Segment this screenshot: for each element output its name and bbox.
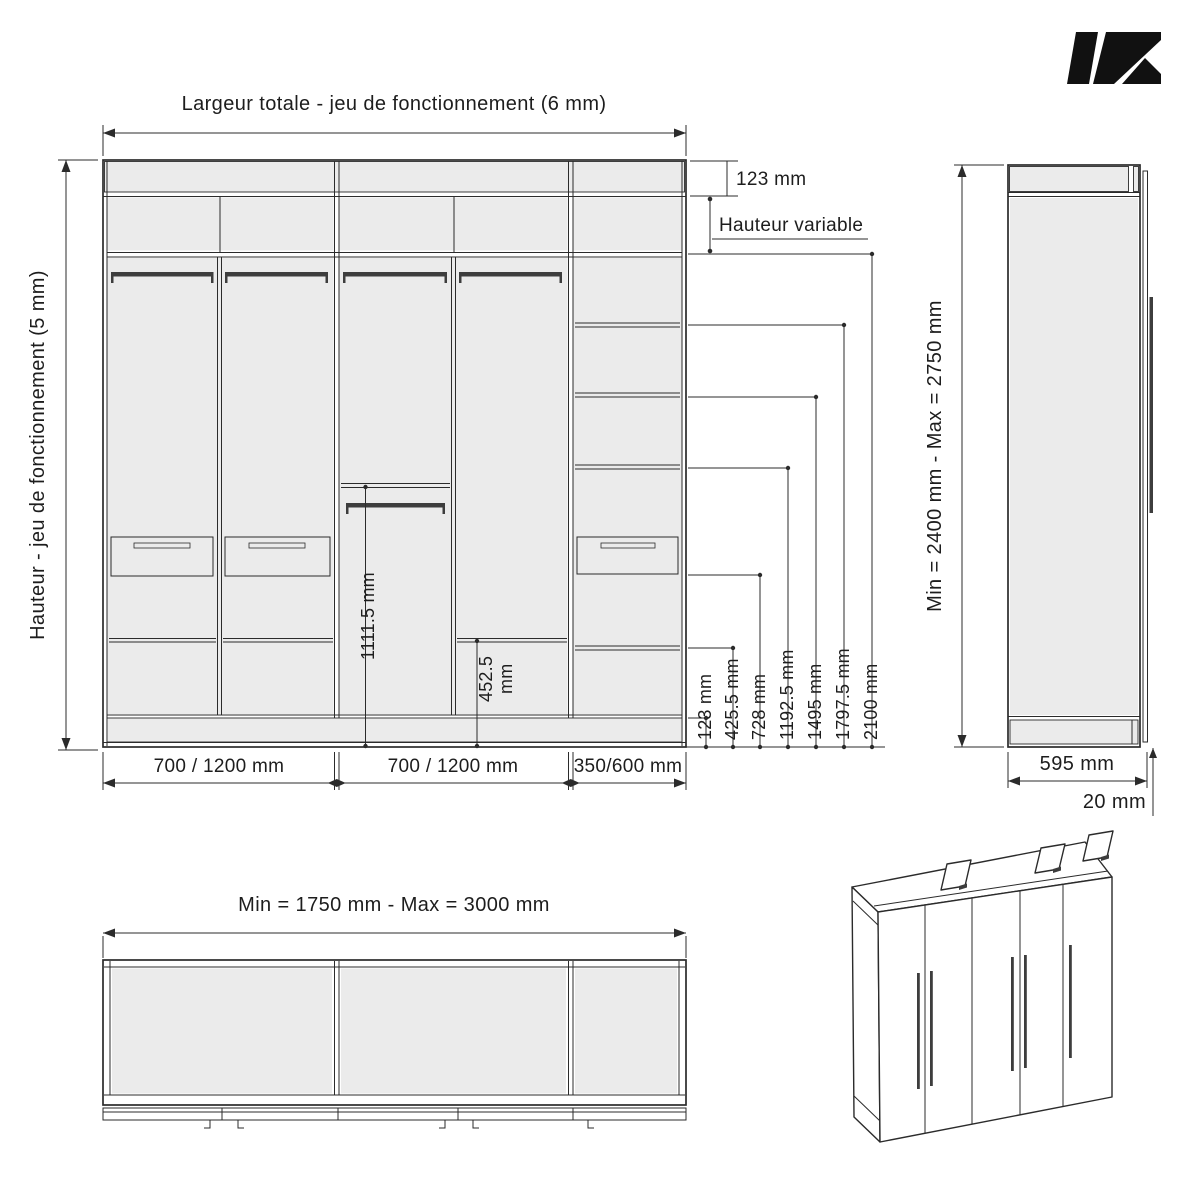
section2-width-label: 700 / 1200 mm <box>388 756 519 777</box>
door-thickness-label: 20 mm <box>1083 791 1146 813</box>
ladder-dim-1797: 1797.5 mm <box>833 648 853 740</box>
hang-space-dim: 1111.5 mm <box>358 572 378 660</box>
top-view-doors <box>103 1108 686 1128</box>
variable-height-label: Hauteur variable <box>719 215 863 236</box>
front-view <box>103 160 686 747</box>
brand-logo-icon <box>1067 32 1161 84</box>
top-width-range-label: Min = 1750 mm - Max = 3000 mm <box>238 894 550 916</box>
top-view: Min = 1750 mm - Max = 3000 mm <box>103 894 686 1128</box>
technical-drawing-page: Largeur totale - jeu de fonctionnement (… <box>0 0 1200 1200</box>
side-height-range-label: Min = 2400 mm - Max = 2750 mm <box>924 300 946 612</box>
side-door-panel <box>1143 171 1148 742</box>
perspective-view <box>852 831 1113 1142</box>
total-width-label: Largeur totale - jeu de fonctionnement (… <box>182 93 607 115</box>
ladder-dim-1495: 1495 mm <box>805 664 825 740</box>
side-depth-label: 595 mm <box>1040 753 1115 775</box>
section1-width-label: 700 / 1200 mm <box>154 756 285 777</box>
ladder-dim-1192: 1192.5 mm <box>777 649 797 740</box>
ladder-dim-728: 728 mm <box>749 674 769 740</box>
wardrobe-technical-drawing: Largeur totale - jeu de fonctionnement (… <box>0 0 1200 1200</box>
total-height-label: Hauteur - jeu de fonctionnement (5 mm) <box>27 270 49 640</box>
shelf-space-dim-line2: mm <box>496 664 516 694</box>
side-door-handle <box>1150 297 1154 513</box>
ladder-dim-123: 123 mm <box>695 674 715 740</box>
ladder-dim-2100: 2100 mm <box>861 664 881 740</box>
shelf-space-dim-line1: 452.5 <box>476 656 496 702</box>
section3-width-label: 350/600 mm <box>574 756 683 777</box>
side-view: Min = 2400 mm - Max = 2750 mm 595 mm 20 … <box>924 165 1157 816</box>
ladder-dim-425: 425.5 mm <box>722 658 742 740</box>
top-offset-label: 123 mm <box>736 169 806 190</box>
